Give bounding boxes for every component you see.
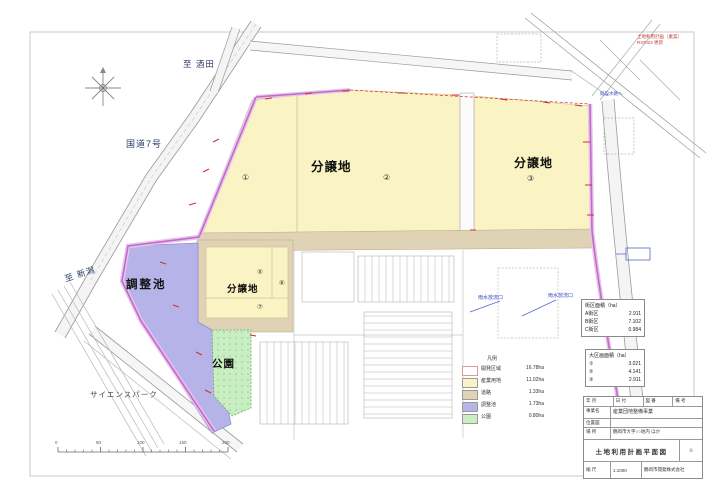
title-block: 年 月 日 付 図 番 備 考 事業名 産業団地整備事業 位置図 場 所 鶴岡市… bbox=[583, 396, 703, 479]
land-use-plan-page: 至 酒田 国道7号 至 新潟 サイエンスパーク 分譲地 分譲地 調整池 分譲地 … bbox=[0, 0, 722, 500]
label-lot-main: 分譲地 bbox=[311, 156, 352, 175]
title-block-scale-row: 縮 尺 1:1000 鶴岡市開発株式会社 bbox=[584, 461, 702, 478]
tb-project-value: 産業団地整備事業 bbox=[610, 407, 702, 418]
legend-value-park: 0.80ha bbox=[510, 413, 544, 419]
label-route7: 国道7号 bbox=[126, 137, 162, 150]
legend-swatch-park bbox=[462, 414, 478, 424]
title-block-title-row: 土地利用計画平面図 ① bbox=[584, 439, 702, 461]
block-a-label: A街区 bbox=[585, 310, 598, 318]
legend-value-industrial: 11.02ha bbox=[510, 377, 544, 383]
scale-tick-0: 0 bbox=[55, 440, 58, 445]
legend-row-industrial: 産業用地 11.02ha bbox=[462, 377, 552, 387]
legend-row-park: 公園 0.80ha bbox=[462, 413, 552, 423]
block-b-value: 7.102 bbox=[628, 318, 641, 326]
label-to-sakata: 至 酒田 bbox=[183, 58, 215, 70]
lot-number-3: ③ bbox=[527, 174, 534, 183]
legend-swatch-industrial bbox=[462, 378, 478, 388]
lot-number-5: ⑤ bbox=[257, 268, 263, 276]
tb-h1: 年 月 bbox=[584, 397, 613, 406]
lot2-label: ② bbox=[589, 368, 593, 376]
legend-label-industrial: 産業用地 bbox=[481, 377, 501, 384]
tb-project-label: 事業名 bbox=[584, 407, 610, 418]
label-pond: 調整池 bbox=[126, 276, 167, 292]
large-lot-title: 大区画面積（ha） bbox=[589, 352, 641, 360]
label-lot-east: 分譲地 bbox=[514, 154, 553, 171]
legend-row-pond: 調整池 1.73ha bbox=[462, 401, 552, 411]
scale-tick-100: 100 bbox=[137, 440, 145, 445]
title-block-locmap-row: 位置図 bbox=[584, 418, 702, 427]
tb-h2: 日 付 bbox=[613, 397, 643, 406]
legend-value-road: 1.33ha bbox=[510, 389, 544, 395]
lot-number-7: ⑦ bbox=[257, 303, 263, 311]
revision-note: 土地利用計画（素案） R37023 更新 bbox=[637, 34, 682, 46]
scale-tick-150: 150 bbox=[179, 440, 187, 445]
block-c-value: 0.984 bbox=[628, 326, 641, 334]
compass-icon bbox=[85, 67, 121, 106]
title-block-project-row: 事業名 産業団地整備事業 bbox=[584, 406, 702, 418]
legend-swatch-road bbox=[462, 390, 478, 400]
legend-label-pond: 調整池 bbox=[481, 401, 496, 408]
title-block-header-row: 年 月 日 付 図 番 備 考 bbox=[584, 397, 702, 406]
legend-swatch-development bbox=[462, 366, 478, 376]
lot1-label: ① bbox=[589, 360, 593, 368]
lot-number-6: ⑥ bbox=[279, 279, 285, 287]
label-lot-small: 分譲地 bbox=[227, 281, 259, 295]
tb-drawing-title: 土地利用計画平面図 bbox=[584, 440, 679, 461]
lot3-label: ③ bbox=[589, 376, 593, 384]
legend-value-development: 16.78ha bbox=[510, 365, 544, 371]
lot2-value: 4.141 bbox=[628, 368, 641, 376]
lot3-value: 2.911 bbox=[629, 376, 641, 384]
legend: 凡例 開発区域 16.78ha 産業用地 11.02ha 道路 1.33ha 調… bbox=[462, 355, 552, 431]
scale-tick-50: 50 bbox=[96, 440, 101, 445]
lot-number-2: ② bbox=[383, 173, 390, 182]
tb-h3: 図 番 bbox=[643, 397, 673, 406]
scale-tick-200: 200 bbox=[222, 440, 230, 445]
large-lot-area-box: 大区画面積（ha） ①3.021 ②4.141 ③2.911 bbox=[585, 349, 645, 387]
note-outflow-1: 雨水放流口 bbox=[478, 294, 503, 301]
tb-scale-value: 1:1000 bbox=[610, 462, 641, 478]
block-area-box: 街区面積（ha） A街区2.911 B街区7.102 C街区0.984 bbox=[581, 299, 645, 337]
legend-row-road: 道路 1.33ha bbox=[462, 389, 552, 399]
legend-label-road: 道路 bbox=[481, 389, 491, 396]
revision-note-line1: 土地利用計画（素案） bbox=[637, 34, 682, 39]
legend-value-pond: 1.73ha bbox=[510, 401, 544, 407]
tb-h4: 備 考 bbox=[672, 397, 702, 406]
lot-number-1: ① bbox=[242, 173, 249, 182]
tb-location-label: 場 所 bbox=[584, 428, 610, 439]
tb-location-value: 鶴岡市大字○○地内 ほか bbox=[610, 428, 702, 439]
tb-locmap-value bbox=[610, 419, 702, 427]
legend-label-park: 公園 bbox=[481, 413, 491, 420]
block-area-title: 街区面積（ha） bbox=[585, 302, 641, 310]
tb-sheet-no: ① bbox=[679, 440, 702, 461]
legend-label-development: 開発区域 bbox=[481, 365, 501, 372]
legend-row-development: 開発区域 16.78ha bbox=[462, 365, 552, 375]
tb-scale-label: 縮 尺 bbox=[584, 462, 610, 478]
block-a-value: 2.911 bbox=[629, 310, 641, 318]
legend-swatch-pond bbox=[462, 402, 478, 412]
title-block-location-row: 場 所 鶴岡市大字○○地内 ほか bbox=[584, 427, 702, 439]
label-park: 公園 bbox=[212, 356, 235, 371]
tb-locmap-label: 位置図 bbox=[584, 419, 610, 427]
lot1-value: 3.021 bbox=[628, 360, 641, 368]
revision-note-line2: R37023 更新 bbox=[637, 40, 663, 45]
label-science-park: サイエンスパーク bbox=[90, 389, 158, 400]
block-b-label: B街区 bbox=[585, 318, 598, 326]
legend-title: 凡例 bbox=[487, 355, 497, 362]
block-c-label: C街区 bbox=[585, 326, 599, 334]
tb-company: 鶴岡市開発株式会社 bbox=[641, 462, 702, 478]
scale-bar bbox=[58, 447, 228, 452]
note-outflow-2: 雨水放流口 bbox=[548, 292, 573, 299]
note-channel: 既設水路へ bbox=[600, 91, 623, 97]
